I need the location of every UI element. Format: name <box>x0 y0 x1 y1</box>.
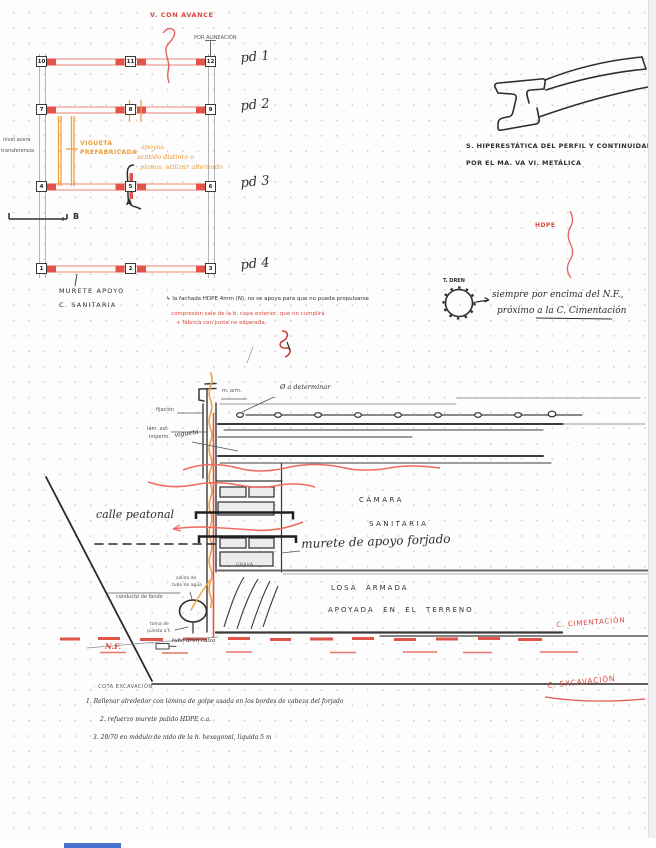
portico-label-2: pd 2 <box>240 97 270 113</box>
note-1: 1. Rellenar alrededor con lámina de golp… <box>86 699 343 705</box>
membrane-note-red2: + fábrica con junta no esperada, <box>176 321 266 327</box>
gravel-hatch <box>224 577 278 629</box>
plan-left-note-1: nivel acera <box>3 138 31 143</box>
ibeam-sketch <box>495 57 648 130</box>
section-marker-b-label: B <box>73 213 79 221</box>
m-arm-label: m. arm. <box>222 389 242 394</box>
red-vertical-squiggle <box>567 211 572 278</box>
membrane-note-marks <box>247 331 290 363</box>
toma-label-1: toma de <box>150 623 169 628</box>
dren-symbol-label: T. DREN <box>443 279 465 284</box>
portico-label-3: pd 3 <box>240 174 270 190</box>
secondary-red-dashes <box>100 652 578 653</box>
column-3: 3 <box>205 263 216 274</box>
column-11: 11 <box>125 56 136 67</box>
membrane-note-black: ↳ la fachada HDPE 4mm (N), no se apoya p… <box>166 297 369 303</box>
dren-note-line1: siempre por encima del N.F., <box>492 291 623 300</box>
cota-excavacion-label: · COTA EXCAVACIÓN <box>94 685 153 690</box>
murete-apoyo-label: MURETE APOYO <box>59 288 124 295</box>
portico-label-4: pd 4 <box>240 256 270 272</box>
plan-red-squiggle-arrow <box>163 29 175 83</box>
ibeam-caption-1: S. HIPERESTÁTICA DEL PERFIL Y CONTINUIDA… <box>466 143 653 150</box>
lam-label-1: lám. asf. <box>147 427 168 432</box>
scroll-handle[interactable] <box>64 843 121 848</box>
lam-label-2: imperm. <box>149 435 170 440</box>
column-7: 7 <box>36 104 47 115</box>
page-right-edge <box>648 0 656 848</box>
sanitaria-section-label: SANITARIA <box>369 521 428 528</box>
murete-blocks <box>218 487 274 566</box>
orange-note-3: planos, utilizar alternado <box>140 164 223 171</box>
column-2: 2 <box>125 263 136 274</box>
column-8: 8 <box>125 104 136 115</box>
arrow-icon <box>476 298 489 303</box>
toma-label-2: puesta a t. <box>147 630 171 635</box>
plan-left-note-2: transferencia <box>1 149 34 154</box>
column-12: 12 <box>205 56 216 67</box>
losa-label-2: APOYADA EN EL TERRENO <box>328 607 474 614</box>
column-4: 4 <box>36 181 47 192</box>
sketch-strokes <box>0 0 656 848</box>
vigueta-label-1: VIGUETA <box>80 141 113 147</box>
excavacion-underline <box>545 697 645 701</box>
salida-label-1: salida de <box>176 577 196 582</box>
dren-note-line2: próximo a la C. Cimentación <box>497 307 626 316</box>
plan-alignment-note: POR ALINEACIÓN <box>194 36 237 41</box>
orange-note-1: apoyos <box>141 144 164 151</box>
slab-rebar-dots <box>237 411 556 417</box>
column-9: 9 <box>205 104 216 115</box>
portico-label-1: pd 1 <box>240 49 270 65</box>
plan-red-note: V. CON AVANCE <box>150 12 214 19</box>
column-1: 1 <box>36 263 47 274</box>
conducto-label: conducto de fondo <box>116 595 163 600</box>
column-6: 6 <box>205 181 216 192</box>
calle-peatonal-label: calle peatonal <box>96 509 174 521</box>
sketch-page: V. CON AVANCE POR ALINEACIÓN 10 11 12 7 … <box>0 0 656 848</box>
label-leader-lines <box>171 397 300 553</box>
hdpe-label: HDPE <box>535 223 556 229</box>
camara-label: CÁMARA <box>359 497 404 504</box>
losa-label-1: LOSA ARMADA <box>331 585 409 592</box>
section-marker-a-label: A <box>126 199 132 207</box>
tubo-dren-label: tubo dren calza <box>172 639 215 645</box>
diam-note-label: Ø a determinar <box>280 384 330 391</box>
section-slab <box>218 398 645 463</box>
column-5: 5 <box>125 181 136 192</box>
ibeam-caption-2: POR EL MA. VA VI. METÁLICA <box>466 160 581 167</box>
membrane-note-red1: compresión sale de la b. capa exterior, … <box>171 312 325 318</box>
vigueta-label-2: PREFABRICADA <box>80 150 137 156</box>
waterproofing-orange-line <box>209 372 212 608</box>
column-10: 10 <box>36 56 47 67</box>
orange-note-2: sentido distinto o <box>137 154 194 161</box>
note-2: 2. refuerzo murete pulido HDPE c.a. <box>100 717 211 723</box>
salida-label-2: tubo de agua <box>172 584 202 589</box>
nf-label: N.F. <box>105 643 121 651</box>
grava-label: GRAVA <box>236 564 254 569</box>
cimentacion-level-dashes <box>60 639 542 640</box>
dren-glyph <box>156 644 169 650</box>
note-3: 3. 20/70 en módulo de nido de la h. hexa… <box>93 735 272 741</box>
c-sanitaria-label: C. SANITARIA <box>59 302 116 309</box>
fijacion-label: fijación <box>156 408 174 413</box>
